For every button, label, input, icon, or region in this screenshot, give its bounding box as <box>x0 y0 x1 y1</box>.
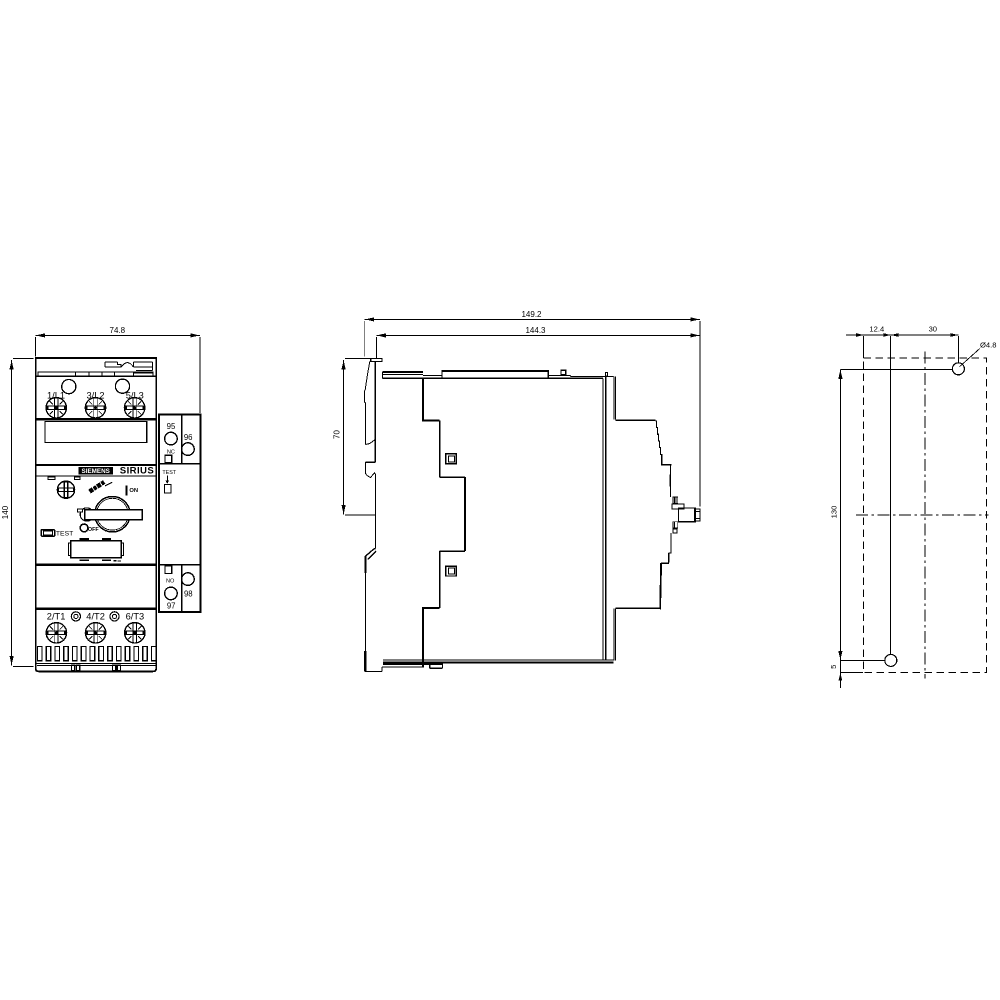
svg-text:2/T1: 2/T1 <box>47 612 66 622</box>
svg-text:OFF: OFF <box>88 527 99 533</box>
svg-text:Ø4.8: Ø4.8 <box>980 340 996 349</box>
svg-text:TEST: TEST <box>56 530 73 537</box>
svg-text:144.3: 144.3 <box>525 326 546 335</box>
svg-text:12.4: 12.4 <box>869 324 884 333</box>
svg-text:3/L2: 3/L2 <box>86 390 104 400</box>
svg-text:6/T3: 6/T3 <box>126 612 145 622</box>
svg-text:95: 95 <box>167 422 176 431</box>
svg-text:70: 70 <box>333 430 342 439</box>
svg-text:140: 140 <box>1 505 10 519</box>
svg-text:130: 130 <box>829 506 838 519</box>
svg-text:149.2: 149.2 <box>521 310 542 319</box>
svg-text:97: 97 <box>167 602 176 611</box>
svg-text:SIRIUS: SIRIUS <box>120 466 155 477</box>
svg-text:74.8: 74.8 <box>110 326 126 335</box>
svg-text:SIEMENS: SIEMENS <box>82 468 110 475</box>
svg-text:TEST: TEST <box>162 470 176 476</box>
svg-text:NO: NO <box>166 578 175 584</box>
svg-text:98: 98 <box>184 590 193 599</box>
svg-text:ON: ON <box>129 488 138 494</box>
svg-text:4/T2: 4/T2 <box>86 612 105 622</box>
svg-text:30: 30 <box>929 324 937 333</box>
svg-text:96: 96 <box>184 433 193 442</box>
svg-text:5: 5 <box>829 665 838 669</box>
